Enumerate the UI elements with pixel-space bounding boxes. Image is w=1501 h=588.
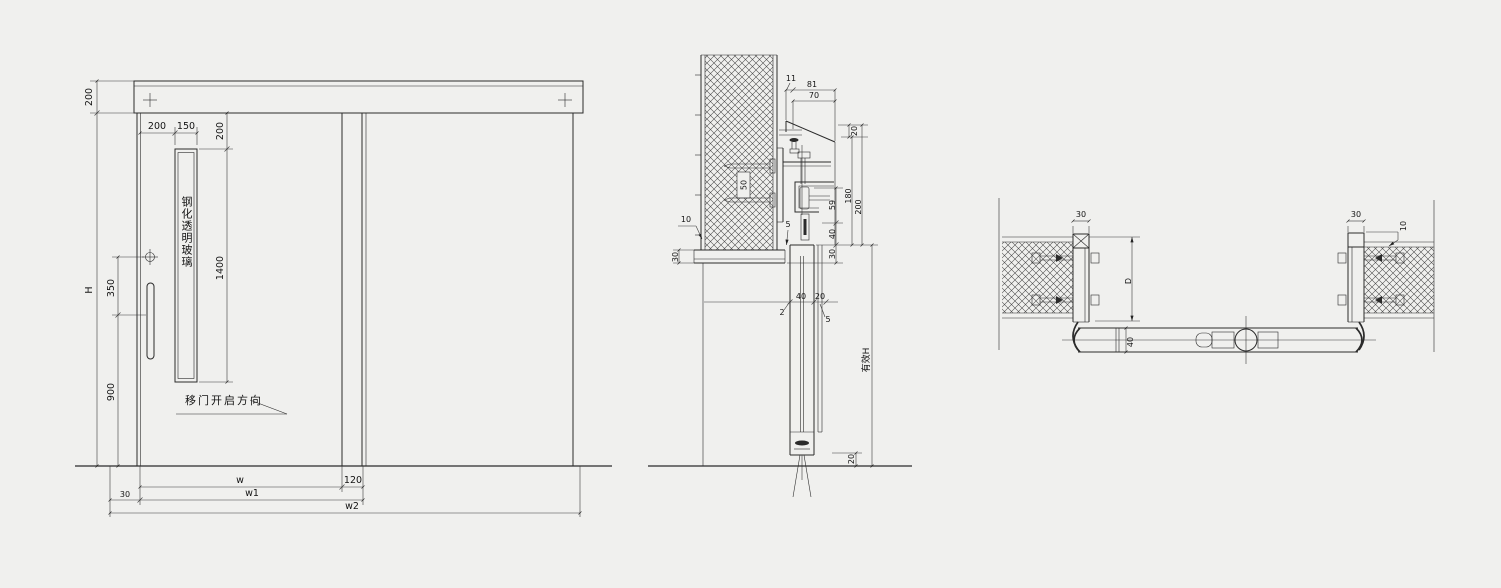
door-panels: [137, 113, 573, 466]
plan-dimensions: 30 D 30 10: [1073, 210, 1408, 321]
dim-glass-height: 1400: [215, 256, 226, 280]
plan-door-leaf: 40: [1062, 316, 1376, 364]
section-wall-trim: [694, 250, 785, 466]
dim-lip: 11: [786, 74, 796, 83]
plan-view: 40: [999, 198, 1434, 364]
opening-direction: 移门开启方向: [176, 393, 287, 414]
dim-side-clearance: 30: [120, 490, 130, 499]
dim-glass-top-offset: 200: [215, 122, 226, 140]
dim-leaf-thickness: 40: [796, 292, 806, 301]
dim-floor-gap: 20: [847, 454, 856, 464]
dim-trim-height: 30: [671, 252, 680, 262]
elevation-dimensions: 200 H 350 900 200 150 200 1400: [84, 81, 580, 517]
elevation-view: 钢化透明玻璃 移门开启方向 200 H 3: [75, 81, 612, 517]
dim-roller-drop: 40: [828, 229, 837, 239]
dim-handle-height: 900: [106, 383, 117, 401]
section-door-leaf: [790, 245, 822, 497]
section-wall: 50: [695, 55, 777, 250]
dim-back-clearance: 20: [815, 292, 825, 301]
opening-direction-label: 移门开启方向: [185, 393, 263, 407]
section-dimensions: 81 70 11 20 59 40 30 180 200: [671, 74, 878, 466]
label-effective-height: 有效H: [860, 348, 872, 373]
plan-right-jamb: [1348, 233, 1364, 350]
door-handle: [147, 283, 154, 359]
dim-total-height: H: [84, 286, 95, 293]
glass-label: 钢化透明玻璃: [180, 196, 193, 268]
dim-cover-height: 20: [850, 126, 859, 136]
dim-track-total: 81: [807, 80, 817, 89]
dim-opening: D: [1124, 278, 1133, 284]
dim-leaf-width: w1: [245, 488, 259, 499]
dim-top-gap: 5: [785, 220, 790, 229]
dim-lock-offset: 350: [106, 279, 117, 297]
dim-glass-width: 150: [177, 121, 195, 132]
dim-bottom-lap: 30: [828, 249, 837, 259]
dim-header-depth: 200: [854, 199, 863, 214]
plan-left-wall: [999, 198, 1073, 350]
dim-total-width: w2: [345, 501, 359, 512]
dim-cover-width: 70: [809, 91, 819, 100]
datum-cross-right: [558, 93, 572, 107]
drawing-svg: 钢化透明玻璃 移门开启方向 200 H 3: [0, 0, 1501, 588]
dim-clear-width: w: [236, 475, 244, 486]
dim-right-jamb: 30: [1351, 210, 1361, 219]
dim-glass-side-offset: 200: [148, 121, 166, 132]
cad-canvas: 钢化透明玻璃 移门开启方向 200 H 3: [0, 0, 1501, 588]
door-lock: [142, 249, 158, 265]
dim-wall-stud: 50: [740, 180, 749, 190]
dim-track-height: 180: [844, 188, 853, 203]
dim-overlap: 120: [344, 475, 362, 486]
dim-wall-offset: 10: [681, 215, 691, 224]
glass-panel: 钢化透明玻璃: [175, 149, 197, 382]
door-header: [134, 81, 583, 113]
dim-wall-gap: 10: [1399, 221, 1408, 231]
track-assembly: [783, 145, 834, 240]
dim-rear-gap: 5: [825, 315, 830, 324]
section-view: 50: [648, 55, 912, 497]
dim-header-height: 200: [84, 88, 95, 106]
datum-cross-left: [143, 93, 157, 107]
dim-left-jamb: 30: [1076, 210, 1086, 219]
dim-plan-leaf-thickness: 40: [1126, 337, 1135, 347]
dim-hanger-height: 59: [828, 200, 837, 210]
dim-front-gap: 2: [779, 308, 784, 317]
